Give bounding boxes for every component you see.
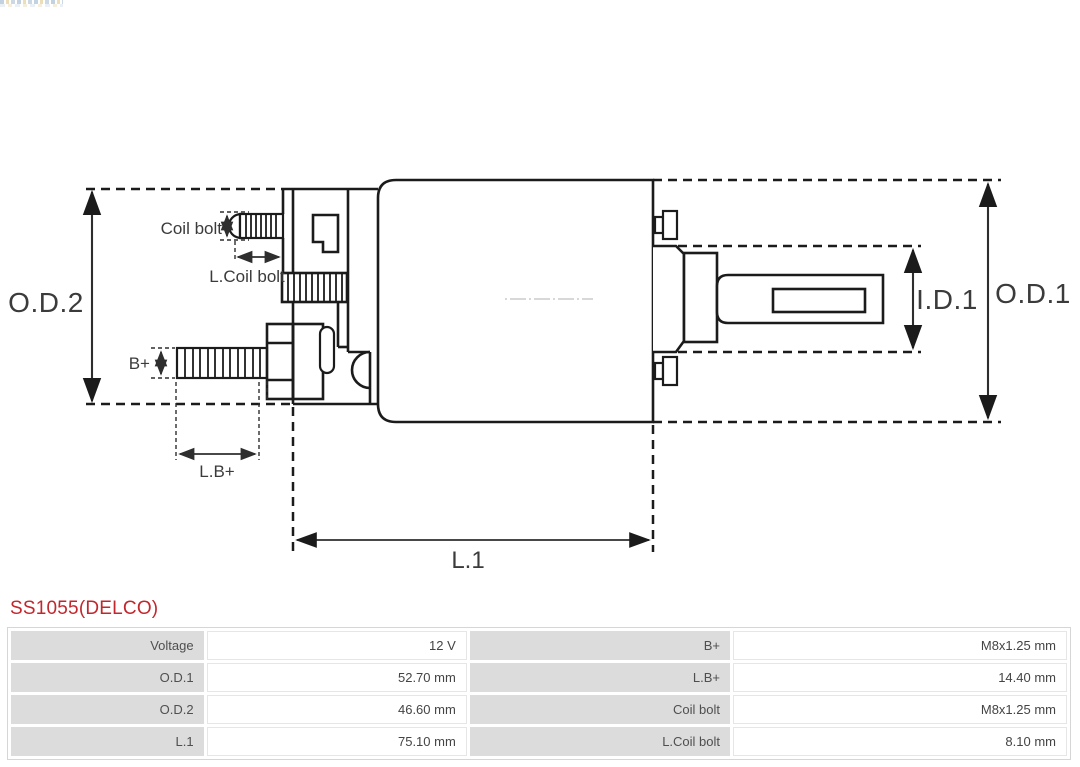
spec-label: L.B+	[470, 663, 730, 692]
spec-label: O.D.1	[11, 663, 204, 692]
od2-label: O.D.2	[8, 287, 84, 318]
table-row: O.D.2 46.60 mm Coil bolt M8x1.25 mm	[11, 695, 1067, 724]
table-row: Voltage 12 V B+ M8x1.25 mm	[11, 631, 1067, 660]
coil-bolt-stud	[229, 214, 283, 238]
spec-label: L.1	[11, 727, 204, 756]
spec-value: 75.10 mm	[207, 727, 467, 756]
b-plus-nut	[267, 324, 293, 399]
terminal-tab-bottom-inner	[655, 363, 663, 379]
lcoilbolt-label: L.Coil bolt	[209, 267, 285, 286]
l1-label: L.1	[451, 547, 484, 574]
spec-table: Voltage 12 V B+ M8x1.25 mm O.D.1 52.70 m…	[7, 627, 1071, 760]
b-plus-boss	[293, 324, 323, 399]
spec-value: 8.10 mm	[733, 727, 1067, 756]
spec-label: B+	[470, 631, 730, 660]
rear-flange	[653, 246, 684, 352]
part-number-title: SS1055(DELCO)	[10, 598, 158, 620]
solenoid-body-group	[177, 180, 883, 422]
plunger-assembly	[653, 211, 883, 385]
product-drawing-page: O.D.2 O.D.1 I.D.1 L.1 L.B+ B+ Coil bolt …	[0, 0, 1080, 767]
spring-housing-arc	[352, 352, 370, 388]
table-row: O.D.1 52.70 mm L.B+ 14.40 mm	[11, 663, 1067, 692]
solenoid-technical-drawing: O.D.2 O.D.1 I.D.1 L.1 L.B+ B+ Coil bolt …	[0, 0, 1080, 595]
coil-terminal-bracket	[313, 215, 338, 252]
spec-label: L.Coil bolt	[470, 727, 730, 756]
spec-label: Voltage	[11, 631, 204, 660]
terminal-tab-top	[663, 211, 677, 239]
bplus-label: B+	[129, 354, 150, 373]
lbplus-label: L.B+	[199, 462, 235, 481]
coil-bolt-tip	[229, 214, 240, 238]
spec-value: 52.70 mm	[207, 663, 467, 692]
spec-value: 46.60 mm	[207, 695, 467, 724]
spec-label: O.D.2	[11, 695, 204, 724]
spec-value: M8x1.25 mm	[733, 631, 1067, 660]
spec-label: Coil bolt	[470, 695, 730, 724]
spec-value: 14.40 mm	[733, 663, 1067, 692]
plunger-shaft	[717, 275, 883, 323]
coilbolt-label: Coil bolt	[161, 219, 223, 238]
id1-label: I.D.1	[916, 284, 978, 315]
threaded-bushing	[282, 273, 347, 302]
od1-label: O.D.1	[995, 278, 1071, 309]
table-row: L.1 75.10 mm L.Coil bolt 8.10 mm	[11, 727, 1067, 756]
spec-value: M8x1.25 mm	[733, 695, 1067, 724]
plunger-collar	[684, 253, 717, 342]
b-plus-stud	[177, 324, 334, 399]
b-plus-washer	[320, 327, 334, 373]
solenoid-body	[378, 180, 653, 422]
terminal-tab-bottom	[663, 357, 677, 385]
terminal-tab-top-inner	[655, 217, 663, 233]
spec-value: 12 V	[207, 631, 467, 660]
